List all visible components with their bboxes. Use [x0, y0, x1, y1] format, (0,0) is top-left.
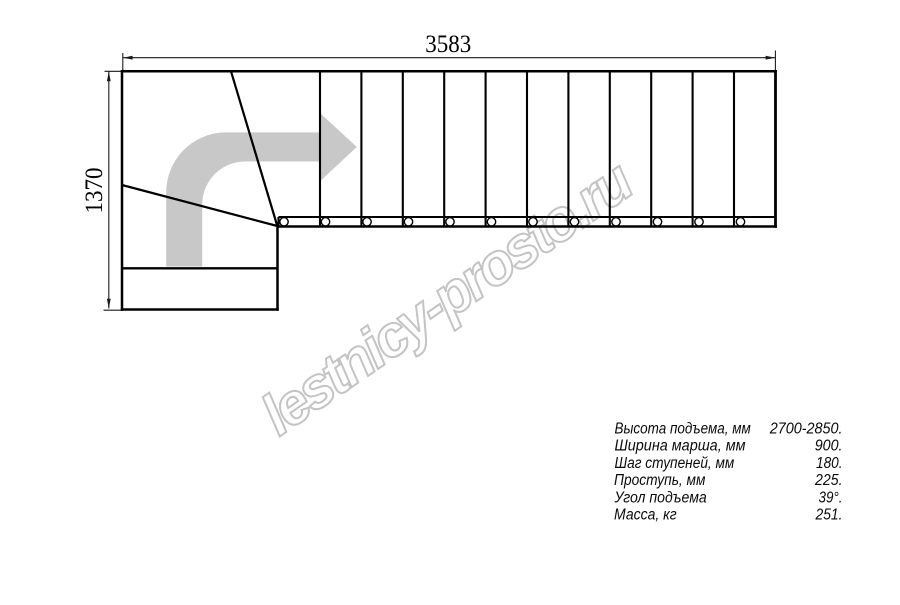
svg-text:251.: 251.	[815, 507, 843, 524]
svg-text:39°.: 39°.	[819, 489, 843, 506]
svg-text:Проступь, мм: Проступь, мм	[614, 472, 706, 489]
svg-text:Ширина марша, мм: Ширина марша, мм	[615, 438, 746, 455]
svg-text:900.: 900.	[815, 438, 843, 455]
svg-text:Масса, кг: Масса, кг	[614, 507, 677, 524]
svg-text:3583: 3583	[425, 31, 471, 58]
svg-text:2700-2850.: 2700-2850.	[769, 421, 843, 438]
svg-text:Угол подъема: Угол подъема	[614, 489, 707, 506]
svg-text:1370: 1370	[81, 168, 108, 214]
svg-text:Шаг ступеней, мм: Шаг ступеней, мм	[615, 455, 735, 472]
svg-text:Высота подъема, мм: Высота подъема, мм	[615, 421, 752, 438]
svg-text:180.: 180.	[816, 455, 843, 472]
svg-text:225.: 225.	[814, 472, 842, 489]
